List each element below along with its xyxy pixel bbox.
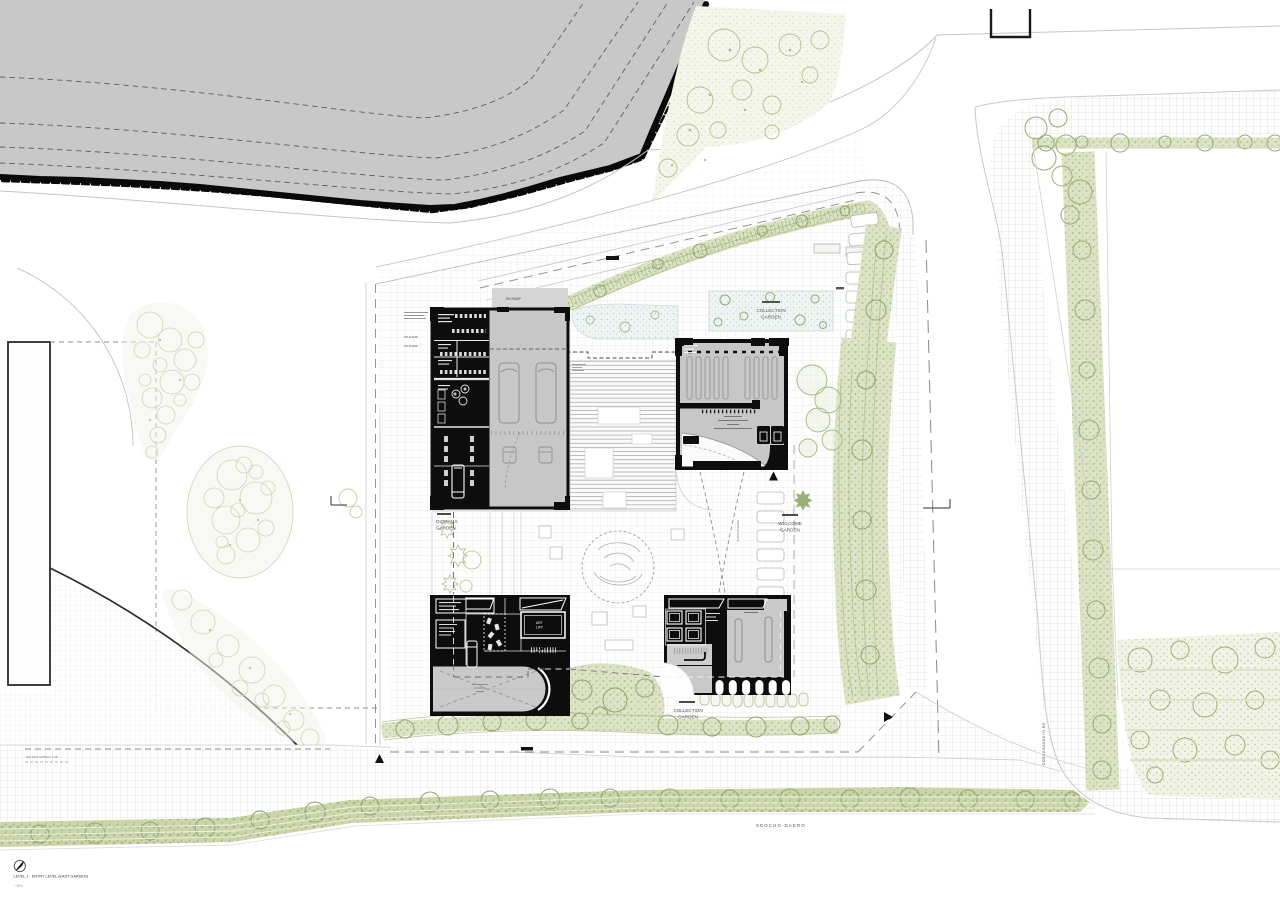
svg-text:~ 10 m: ~ 10 m (14, 884, 23, 888)
svg-text:5% RAMP: 5% RAMP (404, 344, 418, 348)
svg-text:BUILDING SETBACK LINE: BUILDING SETBACK LINE (26, 755, 58, 759)
svg-text:5% RAMP: 5% RAMP (404, 335, 418, 339)
svg-text:GARDEN: GARDEN (761, 315, 781, 320)
svg-text:GARDEN: GARDEN (780, 528, 800, 533)
svg-text:ART: ART (536, 621, 543, 625)
svg-text:WELCOME: WELCOME (778, 521, 802, 526)
svg-text:SHUTTLE ROUTE: SHUTTLE ROUTE (736, 520, 740, 542)
svg-text:SEOCHO-DAERO: SEOCHO-DAERO (756, 823, 806, 828)
svg-text:GARDEN: GARDEN (678, 715, 698, 720)
svg-text:LIFT: LIFT (536, 626, 543, 630)
svg-text:5% RAMP: 5% RAMP (506, 297, 521, 301)
svg-text:DONGGWANGKYO-RO: DONGGWANGKYO-RO (1042, 722, 1046, 765)
svg-text:COLLECTION: COLLECTION (756, 308, 785, 313)
svg-text:DIORAMA: DIORAMA (436, 519, 458, 524)
svg-text:COLLECTION: COLLECTION (673, 708, 702, 713)
svg-text:LEVEL 1 - ENTRY LEVEL (EAST GA: LEVEL 1 - ENTRY LEVEL (EAST GARDEN) (14, 875, 89, 879)
svg-text:GARDEN: GARDEN (436, 526, 456, 531)
